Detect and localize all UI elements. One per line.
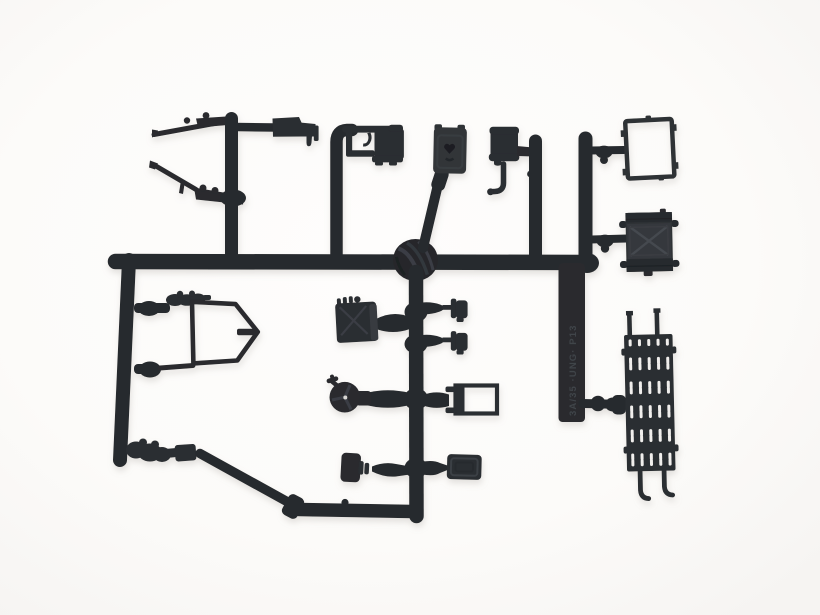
svg-text:3A/35 ·UNG· P13: 3A/35 ·UNG· P13 [568, 325, 579, 416]
